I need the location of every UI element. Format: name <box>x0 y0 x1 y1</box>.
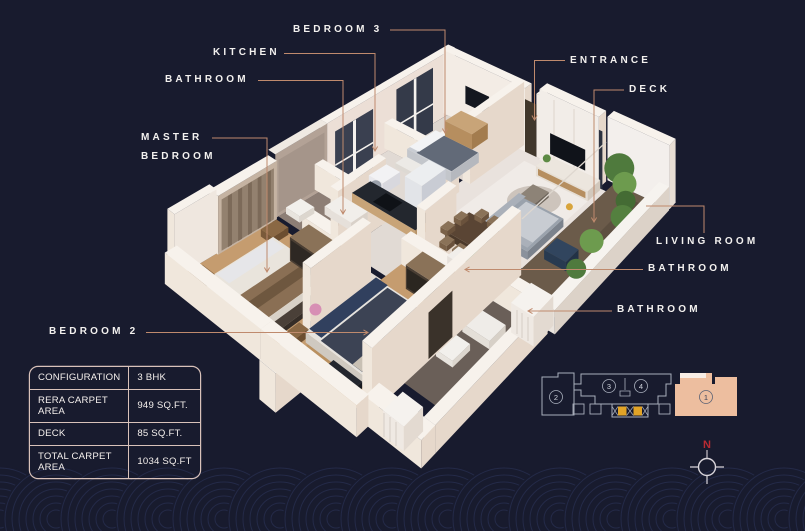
svg-text:1: 1 <box>704 393 708 402</box>
svg-text:2: 2 <box>554 393 558 402</box>
svg-text:N: N <box>703 439 711 451</box>
svg-text:4: 4 <box>639 382 643 391</box>
svg-text:3: 3 <box>607 382 611 391</box>
